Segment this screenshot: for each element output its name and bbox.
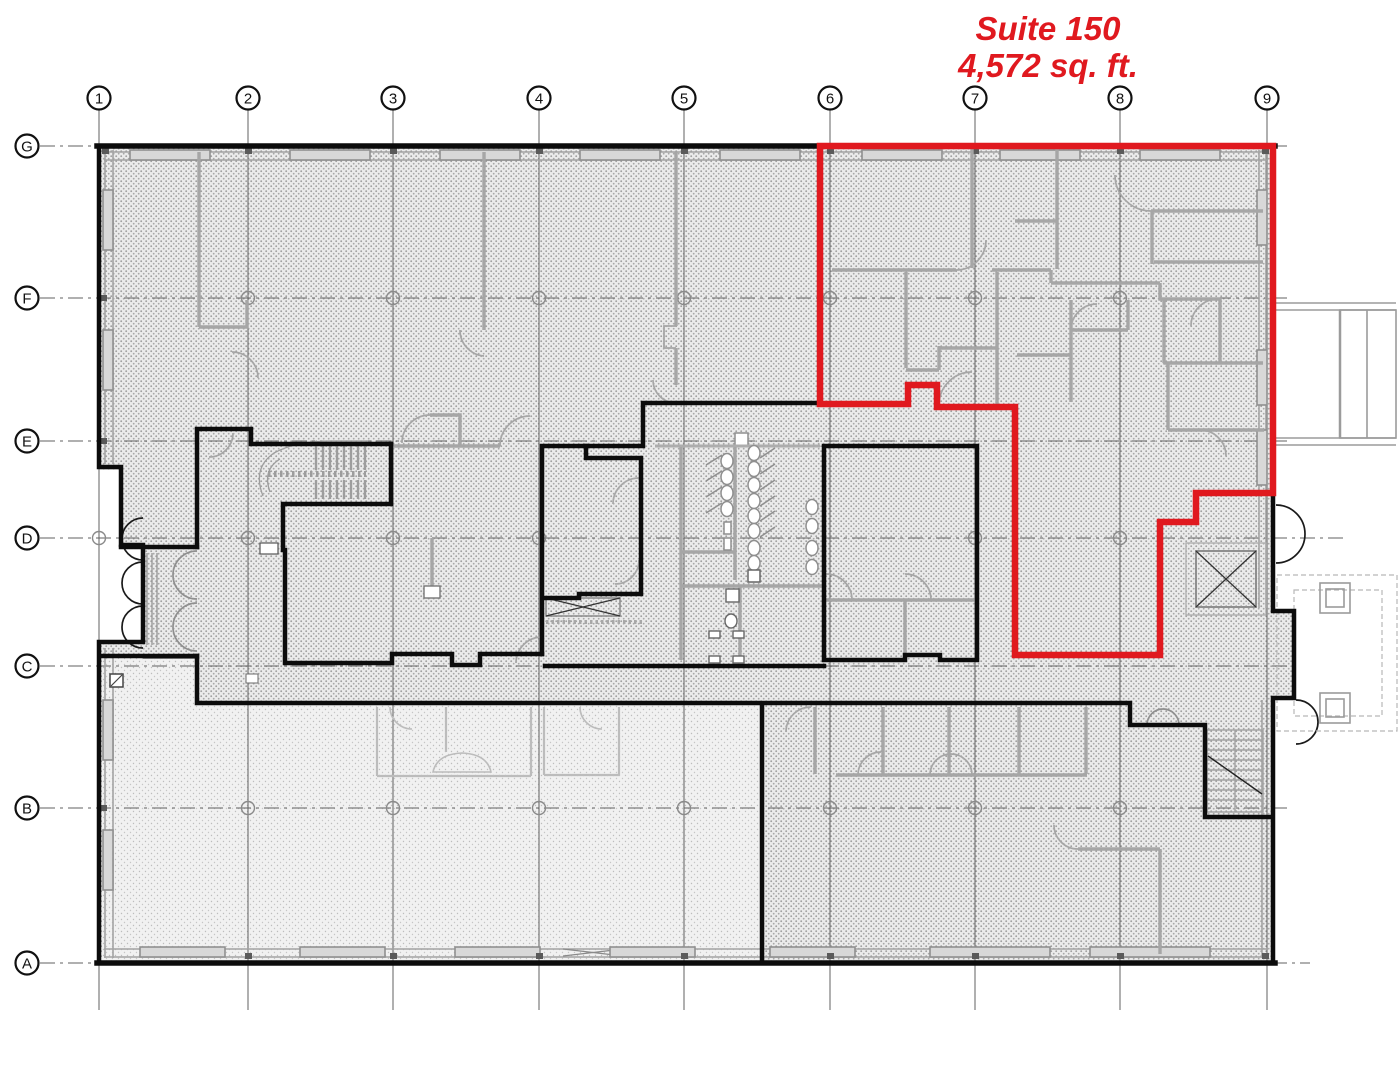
svg-text:9: 9 <box>1263 91 1271 108</box>
svg-text:3: 3 <box>389 91 397 108</box>
svg-text:C: C <box>22 659 33 676</box>
svg-text:G: G <box>21 139 33 156</box>
svg-text:7: 7 <box>971 91 979 108</box>
svg-text:8: 8 <box>1116 91 1124 108</box>
svg-text:1: 1 <box>95 91 103 108</box>
svg-text:6: 6 <box>826 91 834 108</box>
svg-text:5: 5 <box>680 91 688 108</box>
svg-text:A: A <box>22 956 32 973</box>
svg-text:4: 4 <box>535 91 543 108</box>
svg-text:F: F <box>22 291 31 308</box>
svg-text:D: D <box>22 531 33 548</box>
svg-text:E: E <box>22 434 32 451</box>
svg-text:2: 2 <box>244 91 252 108</box>
svg-text:B: B <box>22 801 32 818</box>
svg-text:4,572 sq. ft.: 4,572 sq. ft. <box>957 47 1138 84</box>
svg-text:Suite 150: Suite 150 <box>976 10 1122 47</box>
